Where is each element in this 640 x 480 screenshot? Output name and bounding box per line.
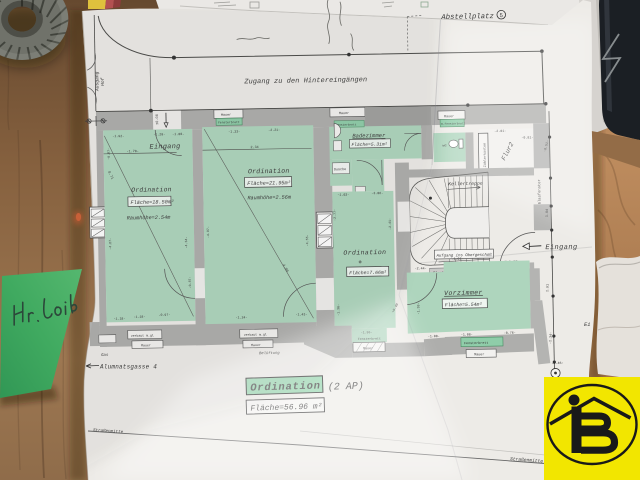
svg-text:-1.38-: -1.38- bbox=[416, 302, 420, 314]
svg-text:Vorzimmer: Vorzimmer bbox=[444, 289, 483, 297]
svg-text:Mauer: Mauer bbox=[474, 352, 484, 357]
svg-text:Fensterbrett: Fensterbrett bbox=[464, 341, 489, 346]
svg-text:Ei: Ei bbox=[584, 321, 591, 328]
svg-text:5: 5 bbox=[499, 12, 503, 19]
svg-text:-2.44-: -2.44- bbox=[415, 266, 427, 270]
svg-text:-1.34-: -1.34- bbox=[549, 332, 554, 344]
svg-text:Fläche=5.54m²: Fläche=5.54m² bbox=[445, 302, 483, 309]
svg-text:Abstellplatz: Abstellplatz bbox=[440, 13, 494, 22]
svg-text:1.91: 1.91 bbox=[546, 284, 551, 292]
svg-text:-1.08-: -1.08- bbox=[428, 334, 440, 338]
svg-text:-0.46-: -0.46- bbox=[551, 362, 563, 366]
svg-text:Aufgang ins Obergeschoß: Aufgang ins Obergeschoß bbox=[435, 253, 492, 259]
